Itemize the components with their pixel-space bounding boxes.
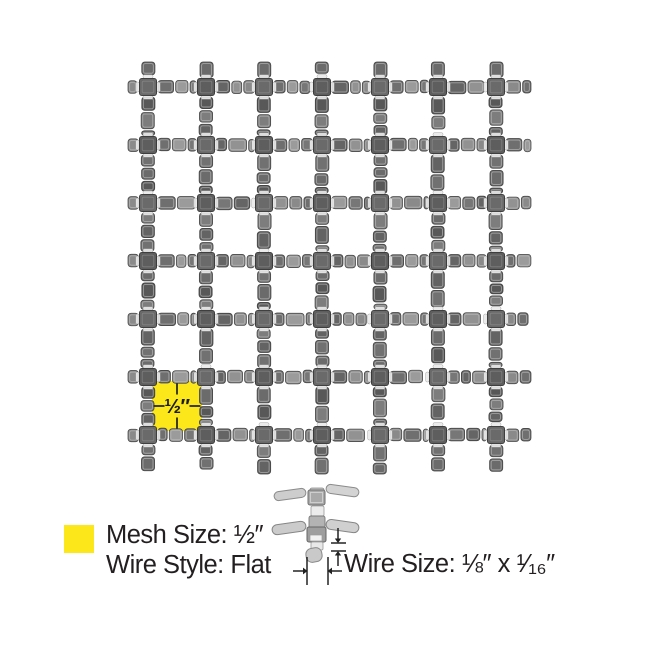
vertical-wire-lower [305,527,326,563]
mesh-size-label: Mesh Size: [106,521,227,549]
wire-size-value: ⅛″ x ¹⁄₁₆″ [462,550,555,578]
wire-style-value: Flat [230,551,271,579]
wire-style-label: Wire Style: [106,551,224,579]
wire-size-line: Wire Size: ⅛″ x ¹⁄₁₆″ [344,550,555,580]
mesh-size-swatch [64,525,94,553]
mesh-size-line: Mesh Size: ½″ [106,521,271,551]
wire-style-line: Wire Style: Flat [106,551,271,581]
product-spec-image: ½″ [0,0,650,650]
legend-left: Mesh Size: ½″ Wire Style: Flat [106,521,271,580]
mesh-size-value: ½″ [234,521,263,549]
vertical-wire-upper [308,490,325,528]
mesh-size-callout: ½″ [164,396,190,418]
wire-size-label: Wire Size: [344,550,455,578]
